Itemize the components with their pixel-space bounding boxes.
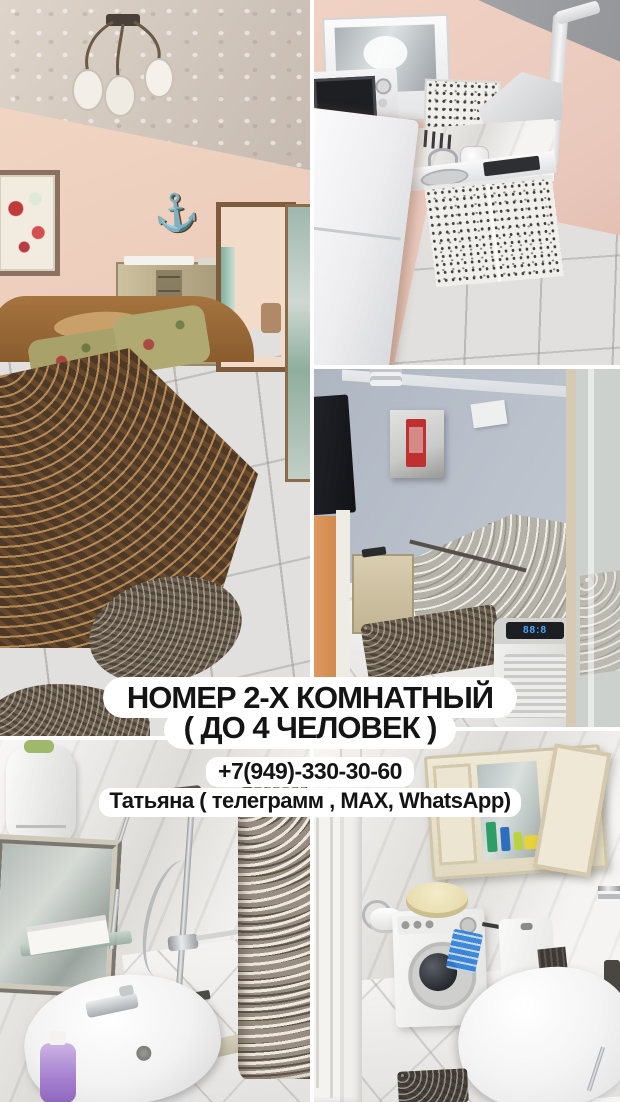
- lower-cabinets: [424, 175, 564, 287]
- listing-text-overlay: НОМЕР 2-Х КОМНАТНЫЙ ( ДО 4 ЧЕЛОВЕК ) +7(…: [0, 677, 620, 817]
- soap-dispenser: [40, 1043, 76, 1102]
- phone-number: +7(949)-330-30-60: [206, 757, 414, 787]
- listing-story-collage: ⚓: [0, 0, 620, 1102]
- items-on-wardrobe: [124, 256, 194, 265]
- mirror-door: [285, 204, 310, 482]
- fridge-door-seam: [312, 224, 401, 241]
- chandelier-icon: [58, 6, 188, 124]
- photo-kitchen: [312, 0, 620, 366]
- flush-button: [520, 923, 532, 931]
- cabinet-seam: [486, 184, 501, 282]
- divider-kitchen-bedroom2: [312, 365, 620, 369]
- shower-mixer: [167, 933, 198, 951]
- shower-curtain: [238, 777, 310, 1079]
- sink-drain: [135, 1045, 152, 1062]
- anchor-decor-icon: ⚓: [152, 190, 201, 236]
- floor-mat: [397, 1068, 469, 1102]
- drawer-lines: [158, 276, 180, 278]
- microwave-dial: [375, 78, 392, 95]
- glass-highlight: [588, 368, 594, 728]
- remote-on-nightstand: [362, 546, 387, 557]
- flower-picture: [0, 170, 60, 276]
- ac-led-display: 88:8: [506, 622, 564, 639]
- red-phone-booth: [406, 419, 426, 467]
- white-door: [312, 788, 362, 1102]
- vent-grille: [370, 368, 402, 386]
- faucet-lever: [118, 984, 134, 997]
- blue-bottle: [500, 827, 511, 852]
- green-bottle: [486, 822, 498, 853]
- contact-line: Татьяна ( телеграмм , MAX, WhatsApp): [99, 788, 520, 817]
- chrome-shelf: [598, 886, 620, 891]
- phone-booth-print: [390, 410, 444, 478]
- energy-sticker: [446, 928, 484, 973]
- glass-partition: [566, 368, 620, 728]
- photo-bedroom-main: ⚓: [0, 0, 310, 737]
- dispenser-pump: [49, 1031, 66, 1045]
- duvet-reflection: [580, 570, 620, 676]
- basin-on-washer: [406, 882, 468, 918]
- washer-buttons: [401, 921, 409, 929]
- title-line2: ( ДО 4 ЧЕЛОВЕК ): [164, 711, 457, 750]
- heater-seam: [16, 825, 66, 828]
- paper-on-wall: [470, 400, 507, 428]
- booth-window: [409, 427, 423, 453]
- towel-hook: [118, 815, 130, 841]
- lime-bottle: [513, 832, 522, 851]
- wall-tv: [312, 394, 356, 515]
- cooktop: [483, 156, 540, 177]
- ceiling-light-reflection: [363, 35, 408, 71]
- microwave-dial2: [378, 98, 387, 107]
- vertical-divider: [310, 0, 314, 1102]
- distant-sofa: [261, 303, 281, 333]
- photo-small-bedroom: 88:8: [312, 368, 620, 728]
- door-groove2: [330, 808, 333, 1098]
- door-groove1: [316, 818, 319, 1088]
